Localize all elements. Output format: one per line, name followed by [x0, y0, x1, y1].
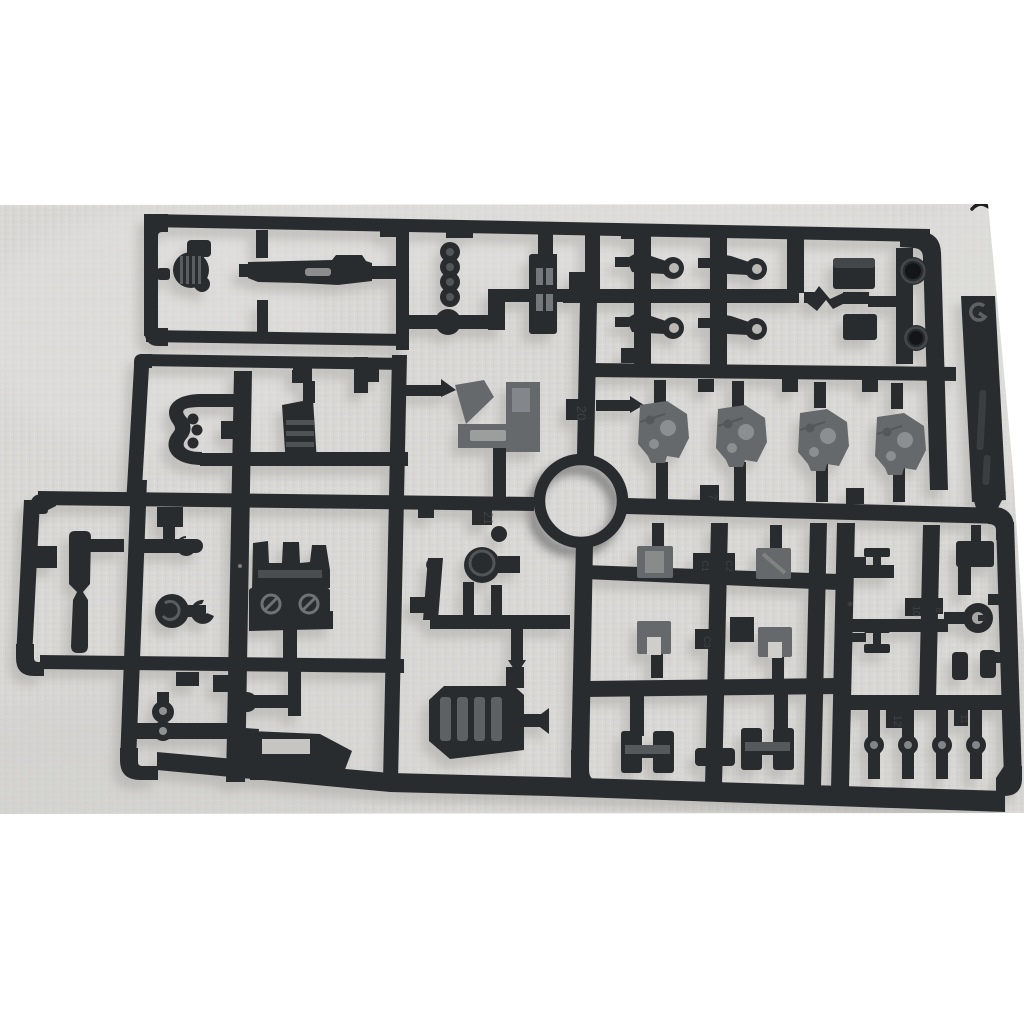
svg-text:C3: C3 [702, 636, 712, 648]
svg-text:21: 21 [481, 511, 495, 525]
svg-text:20: 20 [574, 406, 589, 420]
svg-text:C1: C1 [700, 560, 710, 572]
svg-text:7: 7 [706, 494, 718, 500]
svg-text:8: 8 [934, 607, 944, 612]
svg-text:12: 12 [891, 715, 903, 727]
svg-text:10: 10 [910, 605, 921, 617]
svg-text:C2: C2 [724, 560, 734, 572]
svg-text:11: 11 [959, 714, 969, 723]
